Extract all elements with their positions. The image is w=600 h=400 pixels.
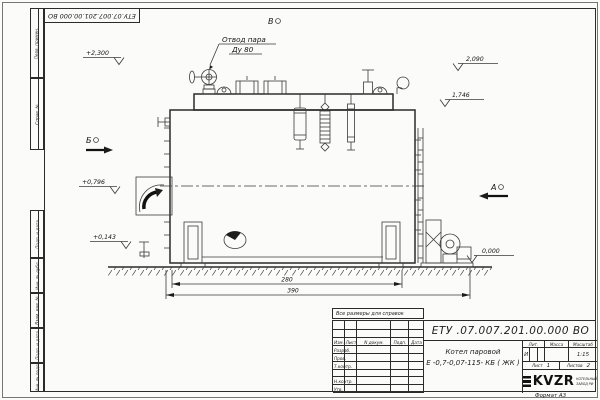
logo-text: KVZR (533, 374, 575, 389)
tb-row-nkontr: Н.контр. (334, 377, 357, 385)
tb-row-prov: Пров. (334, 354, 357, 362)
top-fittings (217, 76, 387, 94)
tb-sheets: Листов 2 (560, 362, 597, 370)
fan-unit (421, 220, 473, 267)
svg-text:0,000: 0,000 (482, 248, 500, 255)
svg-text:Отвод пара: Отвод пара (222, 35, 266, 44)
tb-col-izm: Изм. (333, 338, 345, 346)
tb-change-row-1 (333, 321, 424, 330)
safety-valve (362, 70, 409, 94)
water-level-gauges (294, 94, 355, 151)
tb-col-list: Лист (345, 338, 357, 346)
tb-row-tkontr: Т.контр. (334, 362, 357, 370)
svg-text:В: В (268, 17, 274, 26)
tb-mass-value (545, 348, 569, 362)
svg-text:1,746: 1,746 (452, 92, 470, 99)
steam-outlet-label: Отвод пара Ду 80 (209, 35, 276, 70)
tb-col-podp: Подп. (391, 338, 409, 346)
tb-sheet: Лист 1 (523, 362, 560, 370)
title-block: Изм. Лист N докум. Подп. Дата Разраб. Пр… (332, 320, 596, 392)
reference-dimensions-note: Все размеры для справок (332, 308, 424, 319)
burner (136, 177, 172, 215)
shell-bolts (164, 128, 421, 248)
tb-scale-label: Масштаб (569, 341, 597, 348)
elevation-markers: +2,300 2,090 1,746 +0,796 +0,143 0,000 (79, 50, 514, 263)
logo-bars-icon (523, 376, 531, 387)
company-logo: KVZR КОТЕЛЬНЫЙ ЗАВОД РФ (523, 370, 597, 393)
svg-text:280: 280 (281, 277, 293, 284)
ladder (418, 128, 423, 263)
tb-lit-cell-3 (538, 348, 545, 362)
svg-text:Б: Б (86, 136, 92, 145)
tb-mass-label: Масса (545, 341, 569, 348)
svg-text:+2,300: +2,300 (86, 50, 109, 57)
support-legs (181, 222, 403, 267)
tb-row-razrab: Разраб. (334, 346, 357, 354)
tb-designation: ЕТУ .07.007.201.00.000 ВО (424, 321, 597, 341)
tb-scale-value: 1:15 (569, 348, 597, 362)
manhole (224, 231, 246, 248)
svg-text:+0,796: +0,796 (82, 179, 105, 186)
logo-subtext: КОТЕЛЬНЫЙ ЗАВОД РФ (576, 377, 597, 385)
tb-row-blank-line (333, 370, 424, 377)
tb-col-ndoc: N докум. (357, 338, 391, 346)
left-shell-valves (139, 117, 170, 258)
svg-text:+0,143: +0,143 (93, 234, 116, 241)
tb-lit-cell-2 (530, 348, 537, 362)
tb-change-row-2 (333, 330, 424, 339)
svg-text:А: А (490, 183, 496, 192)
steam-outlet-valve (190, 70, 217, 95)
svg-text:390: 390 (287, 288, 299, 295)
tb-lit-value: И (523, 348, 530, 362)
format-label: Формат А3 (505, 392, 596, 400)
tb-col-data: Дата (409, 338, 424, 346)
tb-lit-label: Лит. (523, 341, 545, 348)
svg-text:Ду 80: Ду 80 (231, 45, 254, 54)
tb-row-utv: Утв. (334, 385, 357, 393)
svg-text:2,090: 2,090 (466, 56, 484, 63)
tb-product-name: Котел паровой Е -0,7-0,07-115- КБ ( ЖК ) (424, 341, 523, 393)
boiler-body (160, 94, 425, 263)
